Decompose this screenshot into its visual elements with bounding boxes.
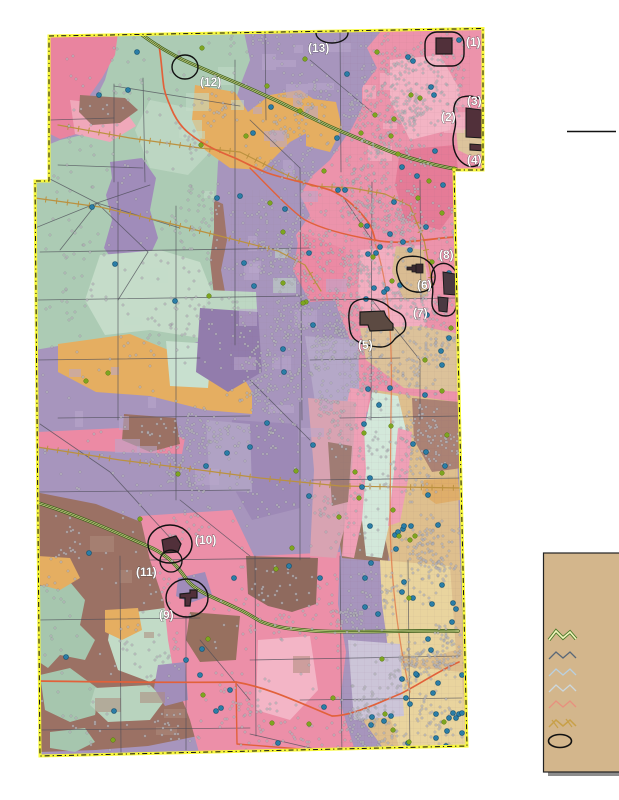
svg-text:(2): (2) — [441, 110, 456, 124]
svg-text:(8): (8) — [439, 248, 454, 262]
svg-text:(9): (9) — [159, 608, 174, 622]
svg-text:(7): (7) — [413, 306, 428, 320]
svg-text:(10): (10) — [195, 533, 216, 547]
svg-text:(4): (4) — [467, 153, 482, 167]
svg-text:(12): (12) — [200, 75, 221, 89]
svg-text:(5): (5) — [358, 338, 373, 352]
svg-text:(11): (11) — [136, 565, 157, 579]
svg-text:(6): (6) — [417, 278, 432, 292]
svg-text:(13): (13) — [308, 41, 329, 55]
svg-text:(3): (3) — [467, 94, 482, 108]
svg-text:(1): (1) — [466, 35, 481, 49]
